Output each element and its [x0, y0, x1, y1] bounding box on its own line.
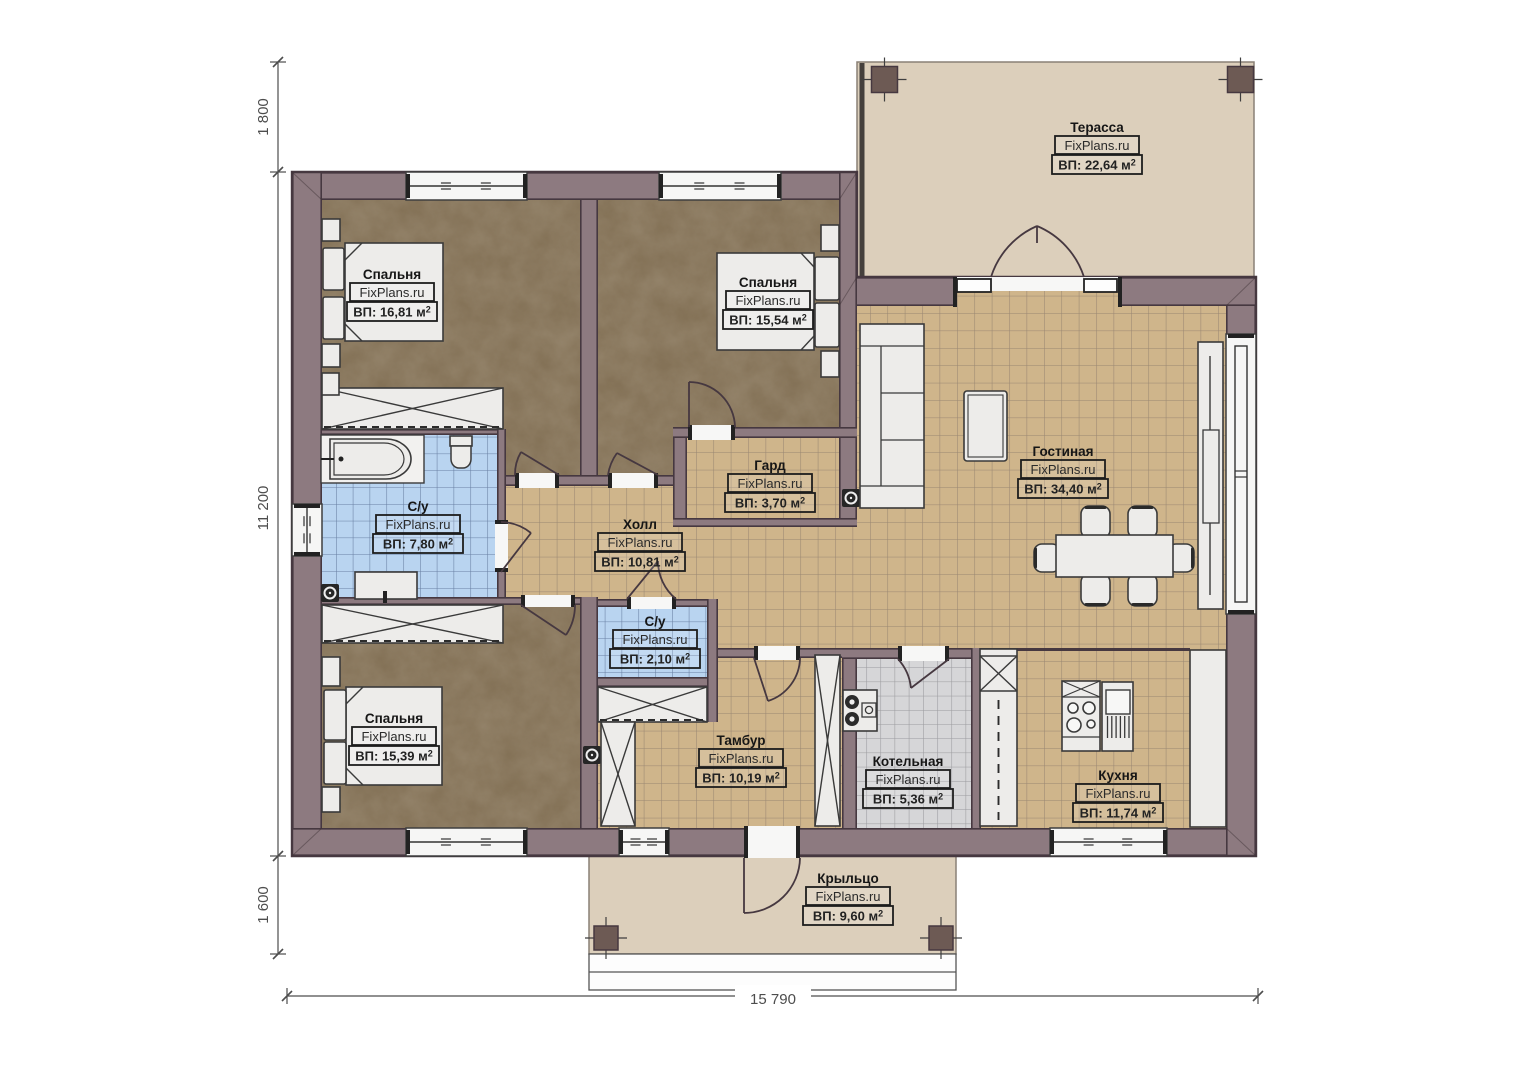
svg-text:Кухня: Кухня [1098, 768, 1137, 783]
svg-text:FixPlans.ru: FixPlans.ru [1064, 138, 1129, 153]
svg-text:Тамбур: Тамбур [717, 733, 766, 748]
svg-text:ВП: 10,19 м2: ВП: 10,19 м2 [702, 771, 779, 786]
svg-text:ВП: 9,60 м2: ВП: 9,60 м2 [813, 909, 883, 924]
svg-text:Котельная: Котельная [873, 754, 944, 769]
svg-text:FixPlans.ru: FixPlans.ru [875, 772, 940, 787]
svg-text:ВП: 7,80 м2: ВП: 7,80 м2 [383, 537, 453, 552]
svg-text:Терасса: Терасса [1070, 120, 1124, 135]
svg-text:Спальня: Спальня [363, 267, 421, 282]
svg-text:FixPlans.ru: FixPlans.ru [361, 729, 426, 744]
svg-text:1 800: 1 800 [255, 98, 272, 136]
svg-text:Крыльцо: Крыльцо [817, 871, 878, 886]
svg-text:ВП: 5,36 м2: ВП: 5,36 м2 [873, 792, 943, 807]
svg-text:С/у: С/у [407, 499, 429, 514]
svg-text:15 790: 15 790 [750, 991, 796, 1008]
svg-text:FixPlans.ru: FixPlans.ru [815, 889, 880, 904]
svg-text:ВП: 16,81 м2: ВП: 16,81 м2 [353, 305, 430, 320]
svg-text:ВП: 2,10 м2: ВП: 2,10 м2 [620, 652, 690, 667]
svg-text:Гард: Гард [754, 458, 786, 473]
svg-text:ВП: 3,70 м2: ВП: 3,70 м2 [735, 496, 805, 511]
svg-text:Спальня: Спальня [739, 275, 797, 290]
svg-text:ВП: 15,39 м2: ВП: 15,39 м2 [355, 749, 432, 764]
svg-text:ВП: 34,40 м2: ВП: 34,40 м2 [1024, 482, 1101, 497]
svg-text:Спальня: Спальня [365, 711, 423, 726]
svg-text:ВП: 15,54 м2: ВП: 15,54 м2 [729, 313, 806, 328]
svg-text:ВП: 10,81 м2: ВП: 10,81 м2 [601, 555, 678, 570]
svg-text:FixPlans.ru: FixPlans.ru [735, 293, 800, 308]
svg-text:FixPlans.ru: FixPlans.ru [1030, 462, 1095, 477]
svg-text:С/у: С/у [644, 614, 666, 629]
svg-text:FixPlans.ru: FixPlans.ru [385, 517, 450, 532]
svg-text:FixPlans.ru: FixPlans.ru [607, 535, 672, 550]
svg-text:Гостиная: Гостиная [1032, 444, 1093, 459]
svg-text:FixPlans.ru: FixPlans.ru [737, 476, 802, 491]
svg-text:ВП: 22,64 м2: ВП: 22,64 м2 [1058, 158, 1135, 173]
svg-text:1 600: 1 600 [255, 886, 272, 924]
svg-text:FixPlans.ru: FixPlans.ru [359, 285, 424, 300]
svg-text:11 200: 11 200 [255, 486, 272, 531]
svg-text:FixPlans.ru: FixPlans.ru [622, 632, 687, 647]
svg-text:ВП: 11,74 м2: ВП: 11,74 м2 [1080, 806, 1157, 821]
svg-text:Холл: Холл [623, 517, 657, 532]
svg-text:FixPlans.ru: FixPlans.ru [708, 751, 773, 766]
svg-text:FixPlans.ru: FixPlans.ru [1085, 786, 1150, 801]
